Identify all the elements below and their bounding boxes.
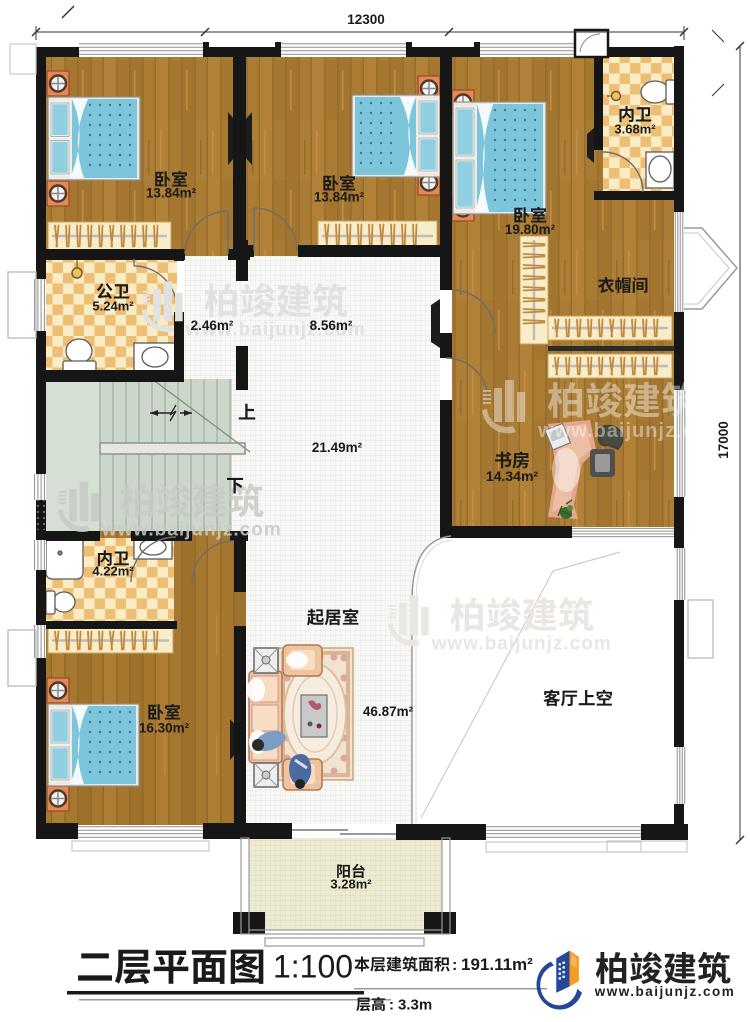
svg-text:3.68m²: 3.68m² <box>614 122 656 137</box>
svg-text::: : <box>452 957 457 974</box>
svg-text:www.baijunjz.com: www.baijunjz.com <box>594 984 736 999</box>
svg-text:21.49m²: 21.49m² <box>312 440 363 455</box>
svg-text:www.baijunjz.com: www.baijunjz.com <box>101 520 282 541</box>
svg-text:1:100: 1:100 <box>273 949 353 985</box>
svg-text:16.30m²: 16.30m² <box>139 720 190 735</box>
svg-text:46.87m²: 46.87m² <box>363 704 414 719</box>
svg-text:19.80m²: 19.80m² <box>505 222 556 237</box>
svg-text:4.22m²: 4.22m² <box>92 564 134 579</box>
svg-text:8.56m²: 8.56m² <box>310 318 353 333</box>
svg-text:2.46m²: 2.46m² <box>191 318 234 333</box>
svg-text:3.3m: 3.3m <box>398 996 432 1013</box>
svg-text:12300: 12300 <box>347 12 385 27</box>
svg-text:3.28m²: 3.28m² <box>330 877 372 892</box>
svg-text:www.baijunjz.com: www.baijunjz.com <box>431 634 612 655</box>
svg-text:17000: 17000 <box>716 421 731 459</box>
svg-text:14.34m²: 14.34m² <box>486 468 538 484</box>
svg-text:www.baijunjz.cn: www.baijunjz.cn <box>537 420 708 442</box>
svg-text:13.84m²: 13.84m² <box>314 189 365 204</box>
svg-text:13.84m²: 13.84m² <box>146 185 197 200</box>
svg-text:191.11m²: 191.11m² <box>461 955 533 974</box>
svg-text:5.24m²: 5.24m² <box>92 299 134 314</box>
svg-text::: : <box>389 996 394 1013</box>
